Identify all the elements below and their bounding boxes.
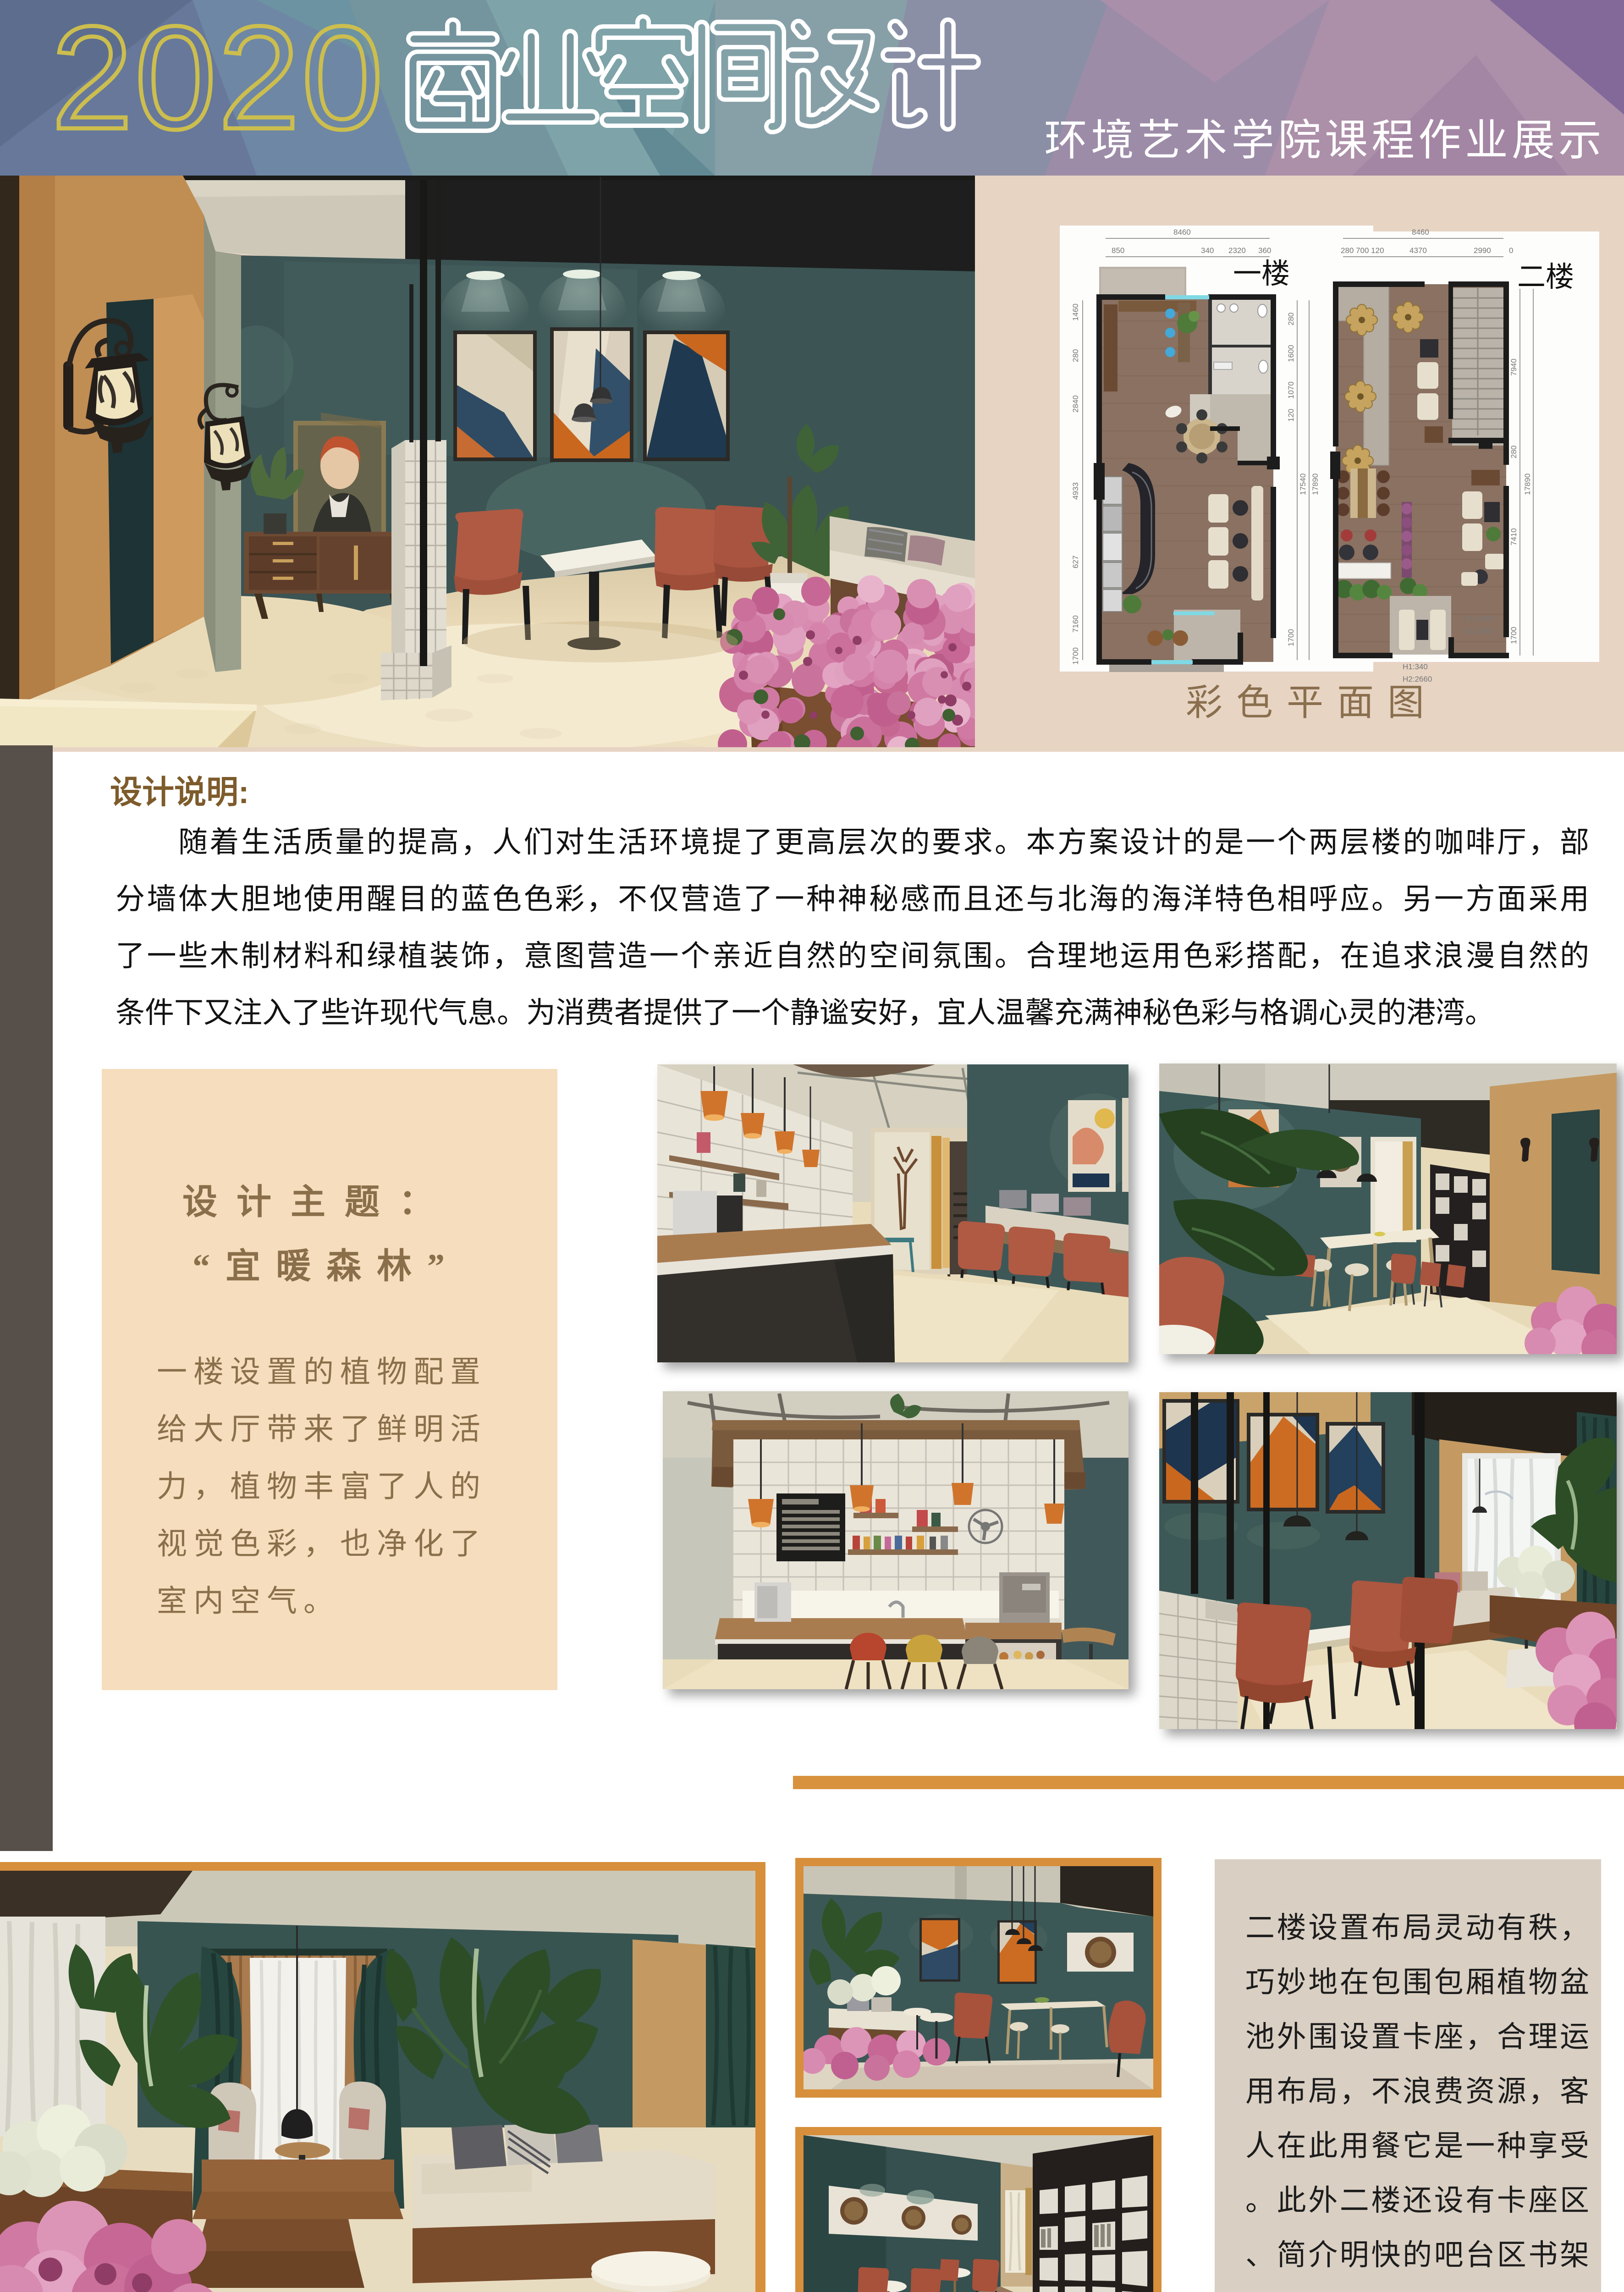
svg-text:二楼: 二楼	[1517, 262, 1574, 293]
svg-text:环境艺术学院课程作业展示: 环境艺术学院课程作业展示	[1044, 116, 1605, 164]
svg-text:17890: 17890	[1311, 474, 1320, 495]
svg-text:280: 280	[1287, 313, 1295, 325]
svg-text:360: 360	[1258, 246, 1271, 255]
svg-text:2990: 2990	[1474, 246, 1491, 255]
svg-text:627: 627	[1071, 556, 1080, 568]
svg-text:7940: 7940	[1509, 358, 1518, 376]
svg-text:1460: 1460	[1071, 303, 1080, 321]
svg-text:850: 850	[1112, 246, 1124, 255]
svg-text:0: 0	[1509, 246, 1513, 255]
svg-text:340: 340	[1201, 246, 1214, 255]
svg-text:17540: 17540	[1299, 474, 1307, 495]
svg-text:2840: 2840	[1071, 395, 1080, 413]
svg-text:17890: 17890	[1523, 474, 1532, 495]
svg-text:2320: 2320	[1228, 246, 1246, 255]
svg-text:H2:1660: H2:1660	[1464, 627, 1494, 635]
svg-text:一楼: 一楼	[1233, 259, 1290, 290]
svg-text:1700: 1700	[1509, 627, 1518, 644]
svg-text:7410: 7410	[1509, 528, 1518, 545]
svg-text:H1:1080: H1:1080	[1464, 614, 1494, 623]
svg-text:2020: 2020	[51, 0, 385, 160]
svg-text:280: 280	[1071, 349, 1080, 362]
svg-text:4370: 4370	[1409, 246, 1427, 255]
svg-text:7160: 7160	[1071, 615, 1080, 633]
svg-text:1700: 1700	[1071, 647, 1080, 665]
svg-text:280 700 120: 280 700 120	[1341, 246, 1384, 255]
svg-text:280: 280	[1509, 446, 1518, 458]
svg-text:1070: 1070	[1287, 381, 1295, 399]
svg-text:4933: 4933	[1071, 482, 1080, 500]
svg-text:8460: 8460	[1412, 228, 1429, 237]
svg-text:1700: 1700	[1287, 629, 1295, 646]
svg-text:1600: 1600	[1287, 345, 1295, 362]
svg-text:120: 120	[1287, 409, 1295, 422]
svg-text:H1:340: H1:340	[1403, 662, 1428, 671]
svg-text:8460: 8460	[1173, 228, 1191, 237]
